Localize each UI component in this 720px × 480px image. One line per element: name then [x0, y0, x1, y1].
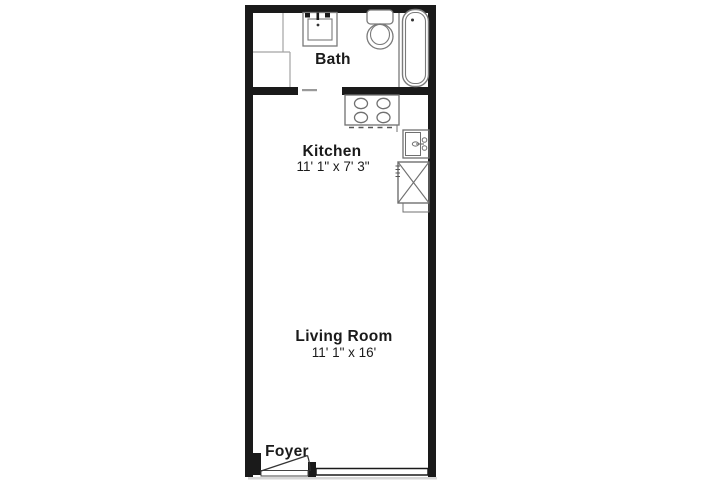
refrigerator-icon — [396, 162, 430, 212]
floor-plan-page: Bath — [0, 0, 720, 480]
wall-left — [245, 5, 253, 477]
wall-bath-south-right — [342, 87, 436, 95]
plan-shadow — [248, 477, 437, 480]
bath-room: Bath — [253, 10, 429, 92]
stove-icon — [345, 95, 399, 132]
living-room-label: Living Room — [295, 328, 392, 345]
bath-door-line — [302, 89, 317, 91]
kitchen-label: Kitchen — [303, 143, 362, 160]
entry-threshold — [261, 471, 308, 477]
vanity-sink-icon — [303, 13, 337, 47]
window-icon — [316, 469, 428, 476]
foyer-area: Foyer — [265, 443, 309, 460]
living-room-dimensions: 11' 1" x 16' — [312, 345, 377, 360]
entry-door-jamb — [252, 453, 261, 475]
living-room: Living Room 11' 1" x 16' — [295, 328, 392, 360]
toilet-icon — [367, 10, 393, 49]
floor-plan-canvas: Bath — [0, 0, 720, 480]
closet-icon — [253, 13, 290, 87]
bath-label: Bath — [315, 51, 351, 68]
kitchen-room: Kitchen 11' 1" x 7' 3" — [296, 95, 429, 212]
wall-right — [428, 5, 436, 477]
kitchen-dimensions: 11' 1" x 7' 3" — [296, 159, 369, 174]
foyer-label: Foyer — [265, 443, 309, 460]
bathtub-icon — [403, 10, 429, 87]
wall-bath-south-left — [253, 87, 298, 95]
kitchen-sink-icon — [403, 130, 429, 158]
